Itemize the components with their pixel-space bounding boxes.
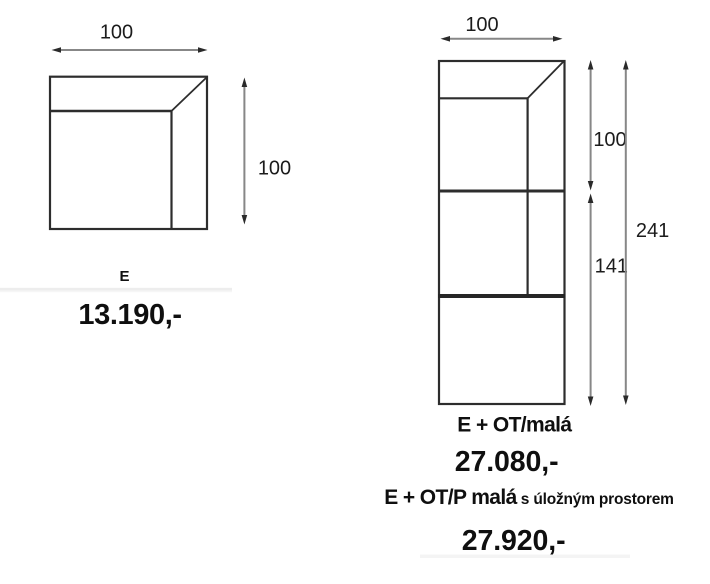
svg-text:27.080,-: 27.080,- xyxy=(455,446,559,478)
svg-text:100: 100 xyxy=(593,129,626,151)
svg-text:E + OT/malá: E + OT/malá xyxy=(457,414,572,437)
svg-text:100: 100 xyxy=(258,158,291,180)
svg-text:100: 100 xyxy=(465,14,498,36)
svg-text:13.190,-: 13.190,- xyxy=(78,299,181,331)
svg-text:100: 100 xyxy=(100,22,133,44)
svg-text:27.920,-: 27.920,- xyxy=(462,525,566,557)
svg-text:E: E xyxy=(119,268,129,285)
svg-text:141: 141 xyxy=(595,256,628,278)
svg-text:E + OT/P malá s úložným prosto: E + OT/P malá s úložným prostorem xyxy=(384,486,674,509)
svg-text:241: 241 xyxy=(636,220,669,242)
